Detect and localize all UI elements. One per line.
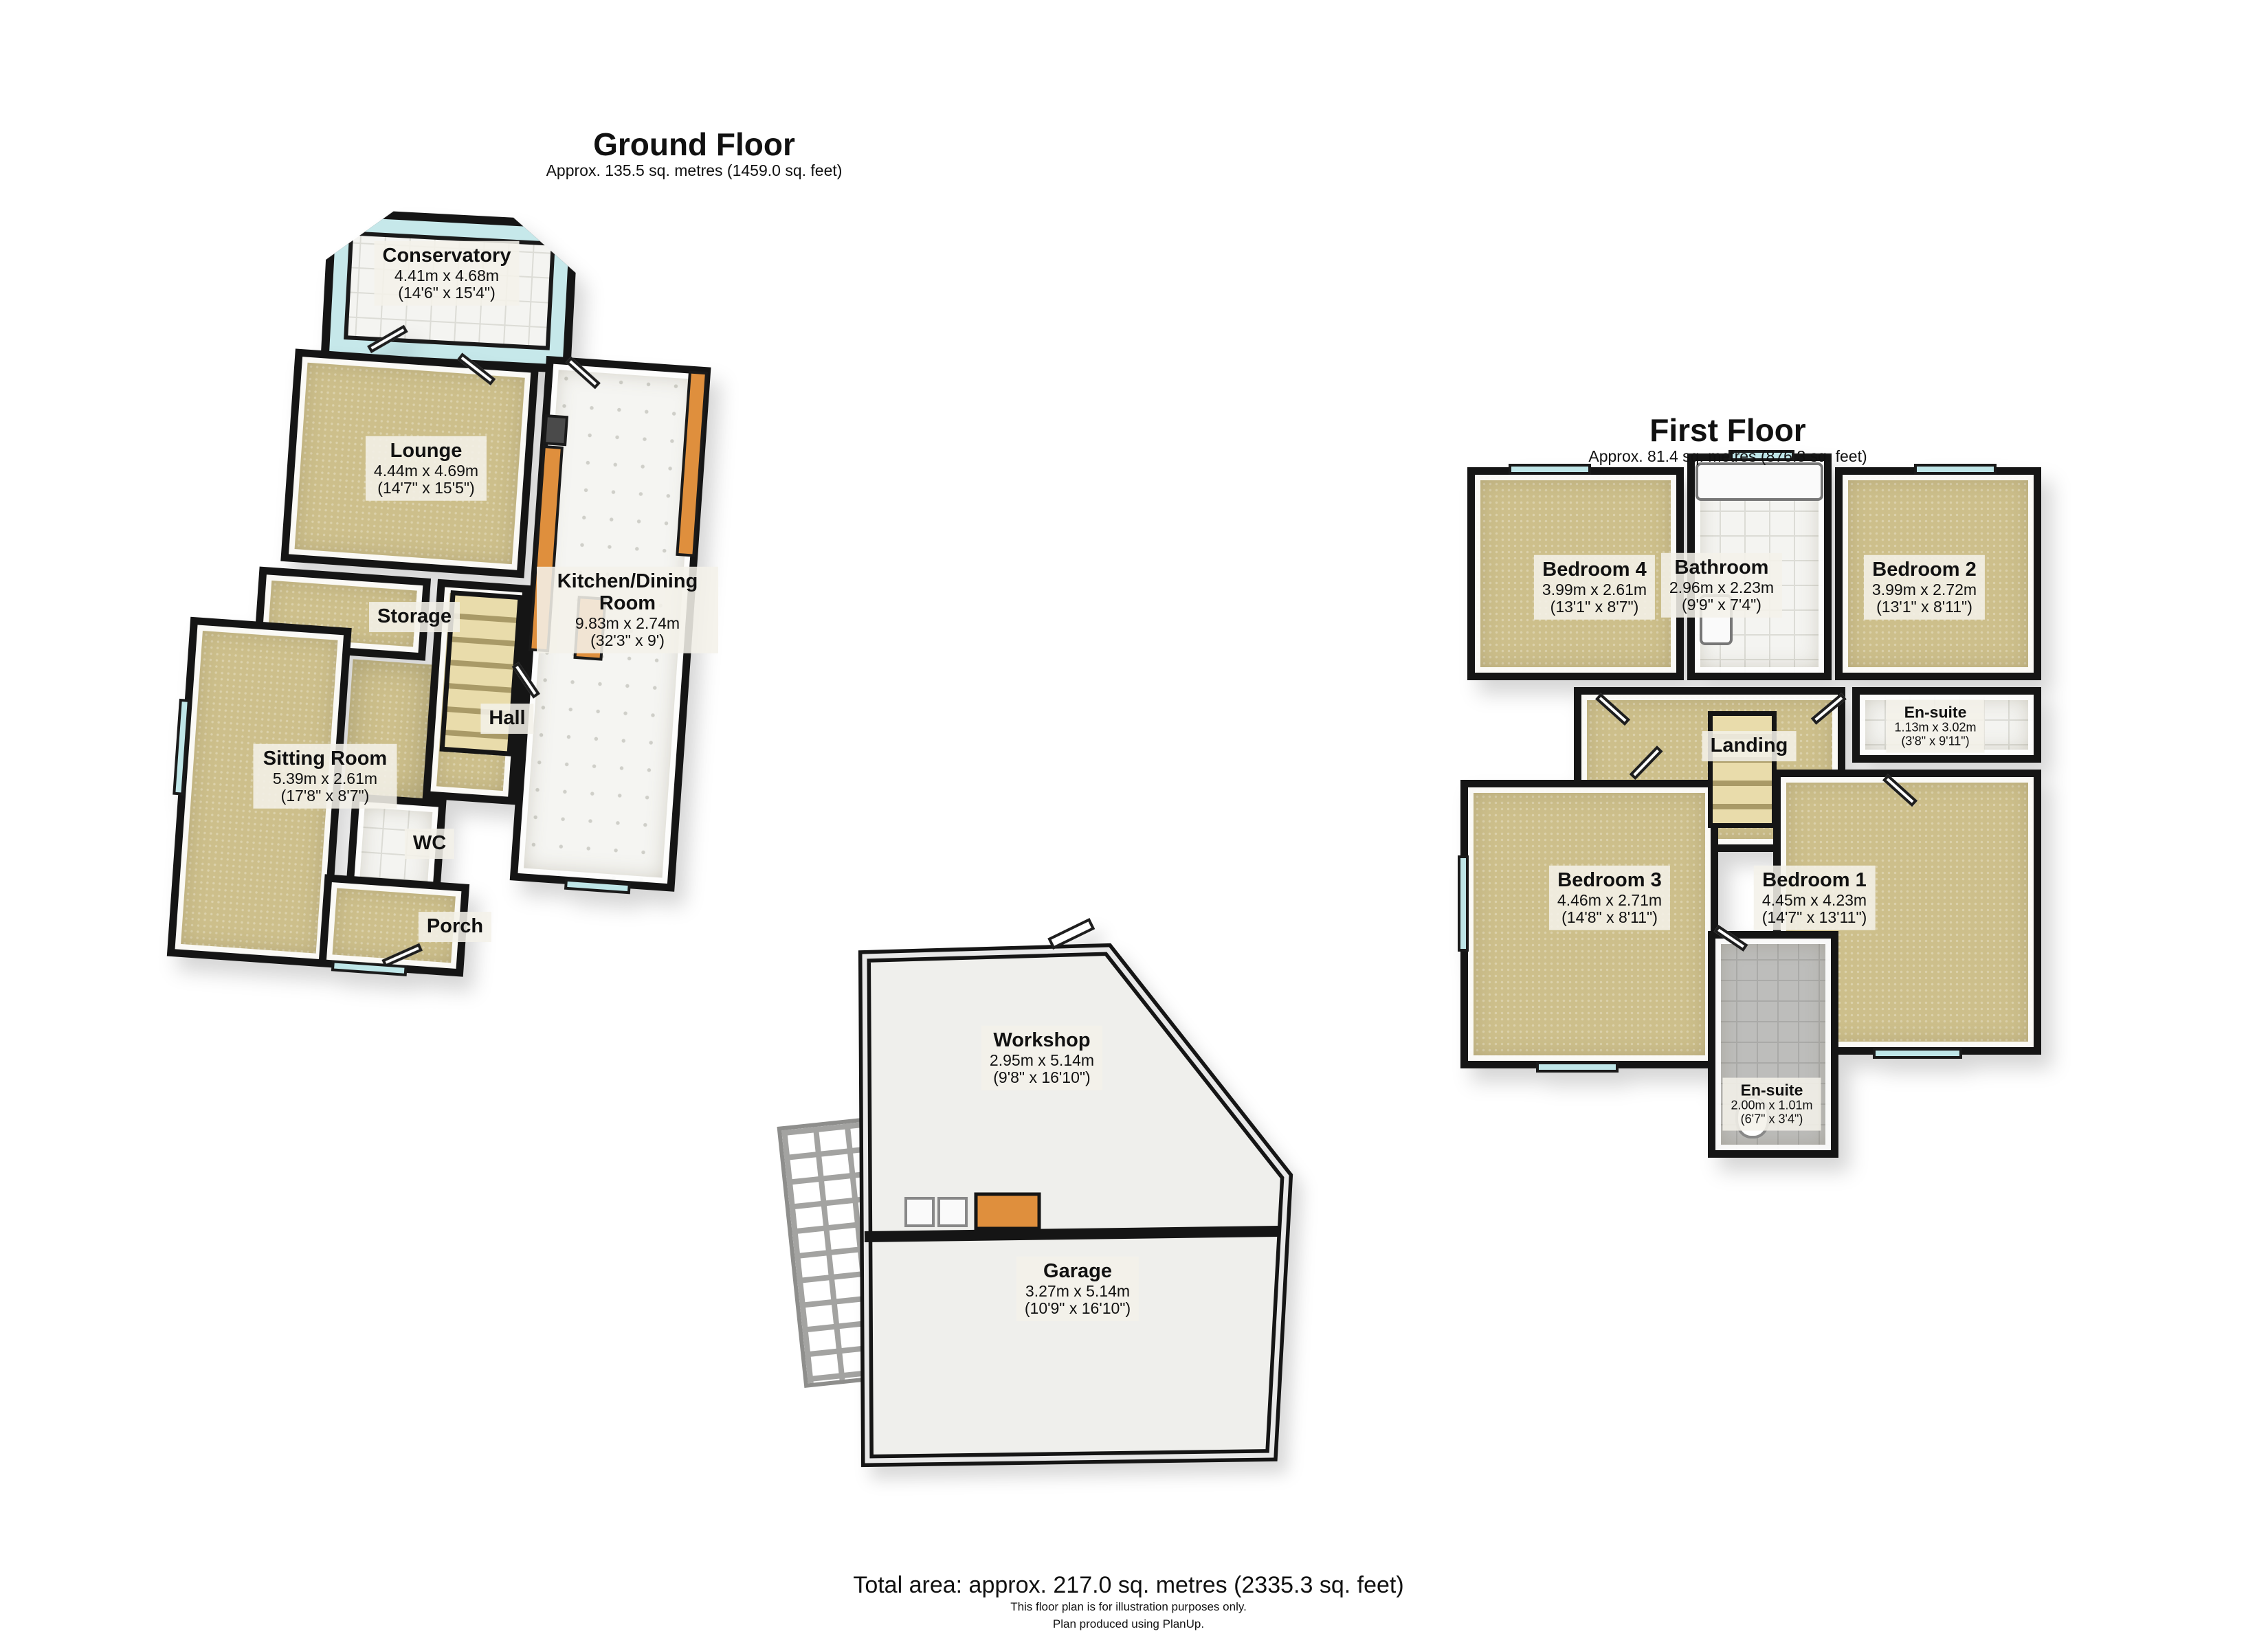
room-label-bedroom-2: Bedroom 2 3.99m x 2.72m (13'1" x 8'11") (1864, 555, 1985, 620)
ground-floor-title: Ground Floor Approx. 135.5 sq. metres (1… (546, 128, 843, 181)
room-label-bedroom-3: Bedroom 3 4.46m x 2.71m (14'8" x 8'11") (1549, 866, 1670, 930)
room-label-hall: Hall (480, 704, 533, 734)
room-label-bedroom-1: Bedroom 1 4.45m x 4.23m (14'7" x 13'11") (1754, 866, 1876, 930)
total-area-text: Total area: approx. 217.0 sq. metres (23… (853, 1572, 1403, 1599)
room-label-garage: Garage 3.27m x 5.14m (10'9" x 16'10") (1016, 1257, 1139, 1321)
ground-floor-area-text: Approx. 135.5 sq. metres (1459.0 sq. fee… (546, 161, 843, 181)
room-label-sitting-room: Sitting Room 5.39m x 2.61m (17'8" x 8'7"… (254, 744, 397, 809)
room-label-conservatory: Conservatory 4.41m x 4.68m (14'6" x 15'4… (375, 241, 520, 306)
floorplan-canvas: Ground Floor Approx. 135.5 sq. metres (1… (0, 0, 2268, 1649)
workshop-garage-divider (865, 1231, 1280, 1237)
credit-text: Plan produced using PlanUp. (853, 1616, 1403, 1633)
room-label-storage: Storage (369, 602, 460, 632)
room-label-bathroom: Bathroom 2.96m x 2.23m (9'9" x 7'4") (1661, 553, 1782, 618)
room-label-workshop: Workshop 2.95m x 5.14m (9'8" x 16'10") (981, 1026, 1102, 1090)
outbuilding-structure (0, 0, 2268, 1649)
first-floor-area-text: Approx. 81.4 sq. metres (876.3 sq. feet) (1588, 447, 1867, 467)
room-label-ensuite-top: En-suite 1.13m x 3.02m (3'8" x 9'11") (1886, 700, 1984, 753)
room-label-ensuite-bottom: En-suite 2.00m x 1.01m (6'7" x 3'4") (1722, 1078, 1821, 1131)
room-label-wc: WC (405, 829, 454, 859)
first-floor-title: First Floor Approx. 81.4 sq. metres (876… (1588, 414, 1867, 467)
room-label-lounge: Lounge 4.44m x 4.69m (14'7" x 15'5") (366, 436, 487, 501)
workshop-counter (976, 1194, 1039, 1229)
sink-icon (939, 1198, 966, 1226)
disclaimer-text: This floor plan is for illustration purp… (853, 1599, 1403, 1616)
room-label-landing: Landing (1702, 731, 1797, 761)
door-leaf (1049, 920, 1093, 948)
ground-floor-title-text: Ground Floor (546, 128, 843, 161)
room-label-bedroom-4: Bedroom 4 3.99m x 2.61m (13'1" x 8'7") (1534, 555, 1655, 620)
sink-icon (906, 1198, 933, 1226)
room-label-porch: Porch (419, 912, 491, 942)
first-floor-title-text: First Floor (1588, 414, 1867, 447)
footer: Total area: approx. 217.0 sq. metres (23… (853, 1572, 1403, 1633)
room-label-kitchen-dining: Kitchen/Dining Room 9.83m x 2.74m (32'3"… (537, 567, 718, 653)
